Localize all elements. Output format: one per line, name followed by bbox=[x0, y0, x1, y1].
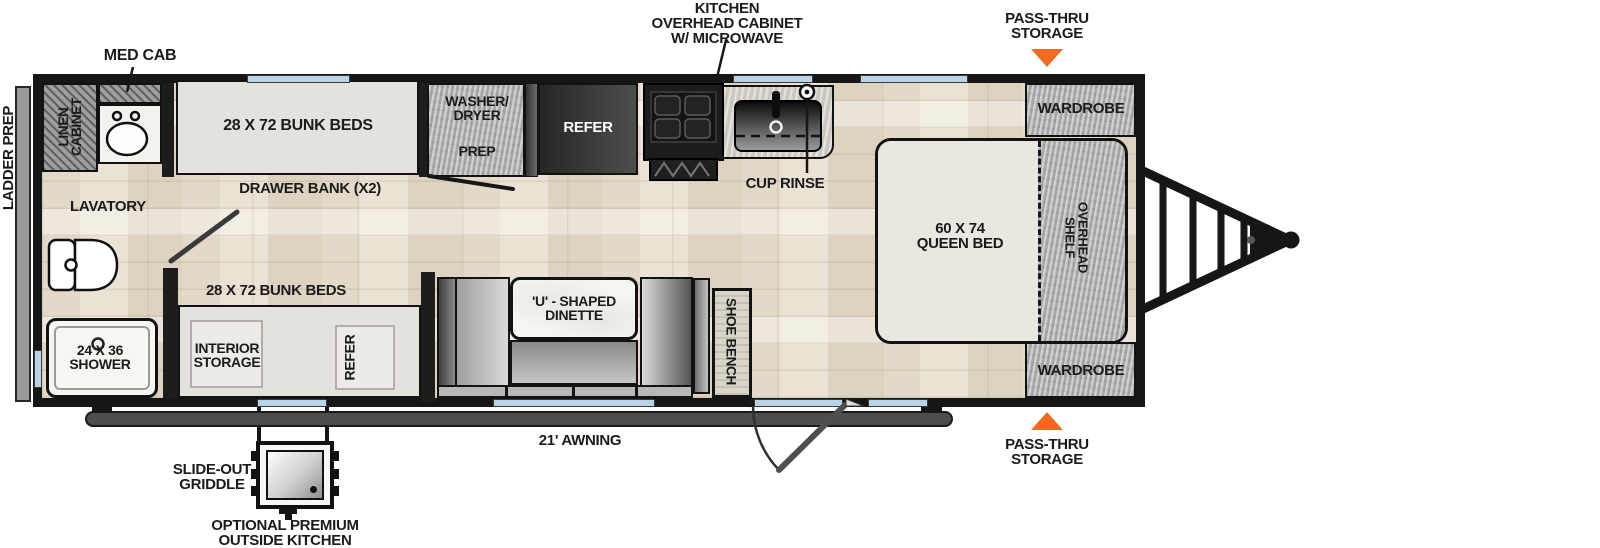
wall-post bbox=[693, 278, 710, 394]
bunk-bottom-label: 28 X 72 BUNK BEDS bbox=[200, 283, 352, 298]
wall-post bbox=[525, 83, 538, 177]
pass-thru-storage-bottom-label: PASS-THRU STORAGE bbox=[997, 437, 1097, 467]
pass-thru-arrow-up-icon bbox=[1031, 412, 1063, 430]
med-cab-label: MED CAB bbox=[94, 48, 186, 64]
bathroom-vanity bbox=[98, 104, 162, 164]
griddle-tab bbox=[334, 451, 339, 461]
hitch-a-frame-icon bbox=[1143, 171, 1300, 309]
shoe-bench-label: SHOE BENCH bbox=[724, 294, 739, 390]
griddle-tab bbox=[334, 486, 339, 496]
window bbox=[868, 399, 928, 407]
wardrobe-bottom-label: WARDROBE bbox=[1026, 363, 1136, 378]
dinette-bench-bottom bbox=[510, 340, 638, 385]
griddle-tab bbox=[334, 469, 339, 479]
kitchen-overhead-label: KITCHEN OVERHEAD CABINET W/ MICROWAVE bbox=[622, 1, 832, 46]
refer-bottom-label: REFER bbox=[342, 325, 357, 391]
cushion-divider bbox=[635, 387, 638, 396]
pass-thru-storage-top-label: PASS-THRU STORAGE bbox=[997, 11, 1097, 41]
window bbox=[493, 399, 655, 407]
washer-dryer-label: WASHER/ DRYER PREP bbox=[429, 94, 525, 158]
outside-kitchen-label: OPTIONAL PREMIUM OUTSIDE KITCHEN bbox=[205, 518, 365, 548]
kitchen-sink bbox=[734, 100, 822, 152]
drawer-bank-label: DRAWER BANK (X2) bbox=[235, 181, 385, 196]
window bbox=[34, 350, 42, 388]
pass-thru-arrow-down-icon bbox=[1031, 49, 1063, 67]
overhead-shelf-label: OVERHEAD SHELF bbox=[1064, 196, 1091, 280]
bunk-top-label: 28 X 72 BUNK BEDS bbox=[185, 118, 411, 134]
dinette-label: 'U' - SHAPED DINETTE bbox=[514, 294, 634, 322]
window bbox=[860, 75, 968, 83]
entry-door-window bbox=[754, 399, 843, 407]
entry-door bbox=[753, 399, 864, 470]
awning-label: 21' AWNING bbox=[520, 433, 640, 448]
lavatory-label: LAVATORY bbox=[53, 199, 163, 214]
wardrobe-top-label: WARDROBE bbox=[1026, 101, 1136, 116]
bathroom-wall bbox=[163, 268, 178, 398]
ladder-prep-label: LADDER PREP bbox=[0, 103, 16, 213]
cushion-divider bbox=[505, 387, 508, 396]
cup-rinse-label: CUP RINSE bbox=[729, 176, 841, 191]
floorplan-canvas: LADDER PREP MED CAB KITCHEN OVERHEAD CAB… bbox=[0, 0, 1600, 548]
griddle-tab bbox=[251, 451, 256, 461]
dinette-bench-left bbox=[437, 277, 457, 399]
med-cab-cabinet bbox=[98, 83, 162, 104]
cushion-divider bbox=[572, 387, 575, 396]
queen-bed-label: 60 X 74 QUEEN BED bbox=[910, 221, 1010, 251]
awning-bar bbox=[85, 411, 953, 427]
dinette-bench-right bbox=[640, 277, 693, 399]
awning-mount bbox=[92, 404, 112, 413]
slide-out-griddle-label: SLIDE-OUT GRIDDLE bbox=[142, 462, 282, 492]
wall-post bbox=[162, 83, 174, 177]
wall-post bbox=[421, 272, 435, 402]
dinette-bench-left-seat bbox=[455, 277, 510, 399]
rear-bumper bbox=[15, 86, 31, 402]
dinette-cushions bbox=[437, 385, 693, 398]
shower-label: 24 X 36 SHOWER bbox=[50, 343, 150, 371]
outside-kitchen-opening bbox=[257, 399, 327, 407]
griddle-knob bbox=[310, 486, 317, 493]
window bbox=[733, 75, 813, 83]
refer-top-label: REFER bbox=[538, 120, 638, 135]
wall-post bbox=[419, 83, 427, 177]
linen-cabinet-label: LINEN CABINET bbox=[56, 82, 84, 172]
interior-storage-label: INTERIOR STORAGE bbox=[177, 341, 277, 369]
window bbox=[247, 75, 350, 83]
